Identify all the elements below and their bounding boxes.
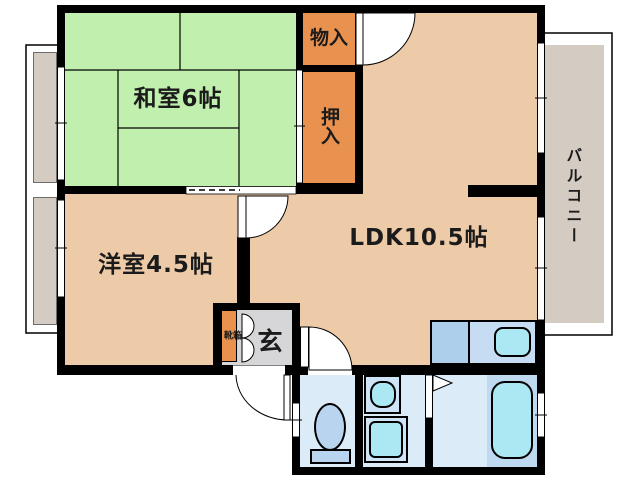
washbasin-sink-icon (370, 381, 396, 408)
wall-ldk-stub (468, 185, 537, 197)
wall-washitsu-yoshitsu (57, 186, 186, 194)
wall-washitsu-right-top (296, 5, 303, 70)
wall-genkan-left (213, 303, 222, 375)
wall-toilet-washroom (355, 375, 363, 467)
wall-genkan-top (213, 303, 300, 310)
yoshitsu-label: 洋室4.5帖 (98, 253, 214, 277)
floor-plan: バルコニー (0, 0, 640, 480)
wall-closet-right (355, 5, 363, 194)
wall-yoshitsu-ldk (237, 237, 250, 307)
monoire-label: 物入 (310, 29, 348, 49)
ldk-label: LDK10.5帖 (349, 226, 488, 250)
wall-oshiire-bottom (296, 183, 363, 194)
wall-right (537, 5, 545, 475)
washing-machine-drum-icon (369, 421, 403, 458)
wall-bottom-wet (292, 467, 545, 475)
wall-ldk-wetrooms (292, 365, 545, 375)
kitchen-counter (430, 320, 537, 365)
toilet-bowl-icon (314, 403, 346, 451)
balcony-label: バルコニー (564, 147, 581, 247)
door-arc (236, 375, 288, 420)
wall-toilet-left (292, 375, 300, 475)
oshiire-label: 押入 (318, 107, 338, 145)
wall-entrance (222, 365, 300, 375)
wall-bath-door-stub (425, 418, 433, 467)
toilet-tank-icon (310, 449, 351, 464)
washitsu-label: 和室6帖 (133, 87, 222, 111)
left-walkway-upper (33, 52, 57, 183)
door-leaf (284, 375, 290, 420)
shoe-cabinet-label: 靴箱 (224, 332, 242, 341)
wall-yoshitsu-bottom (57, 365, 222, 375)
left-walkway-lower (33, 197, 57, 325)
wall-monoire-bottom (303, 65, 363, 72)
bathtub-icon (491, 381, 533, 459)
genkan-label: 玄 (257, 329, 282, 355)
kitchen-sink-icon (494, 327, 531, 357)
